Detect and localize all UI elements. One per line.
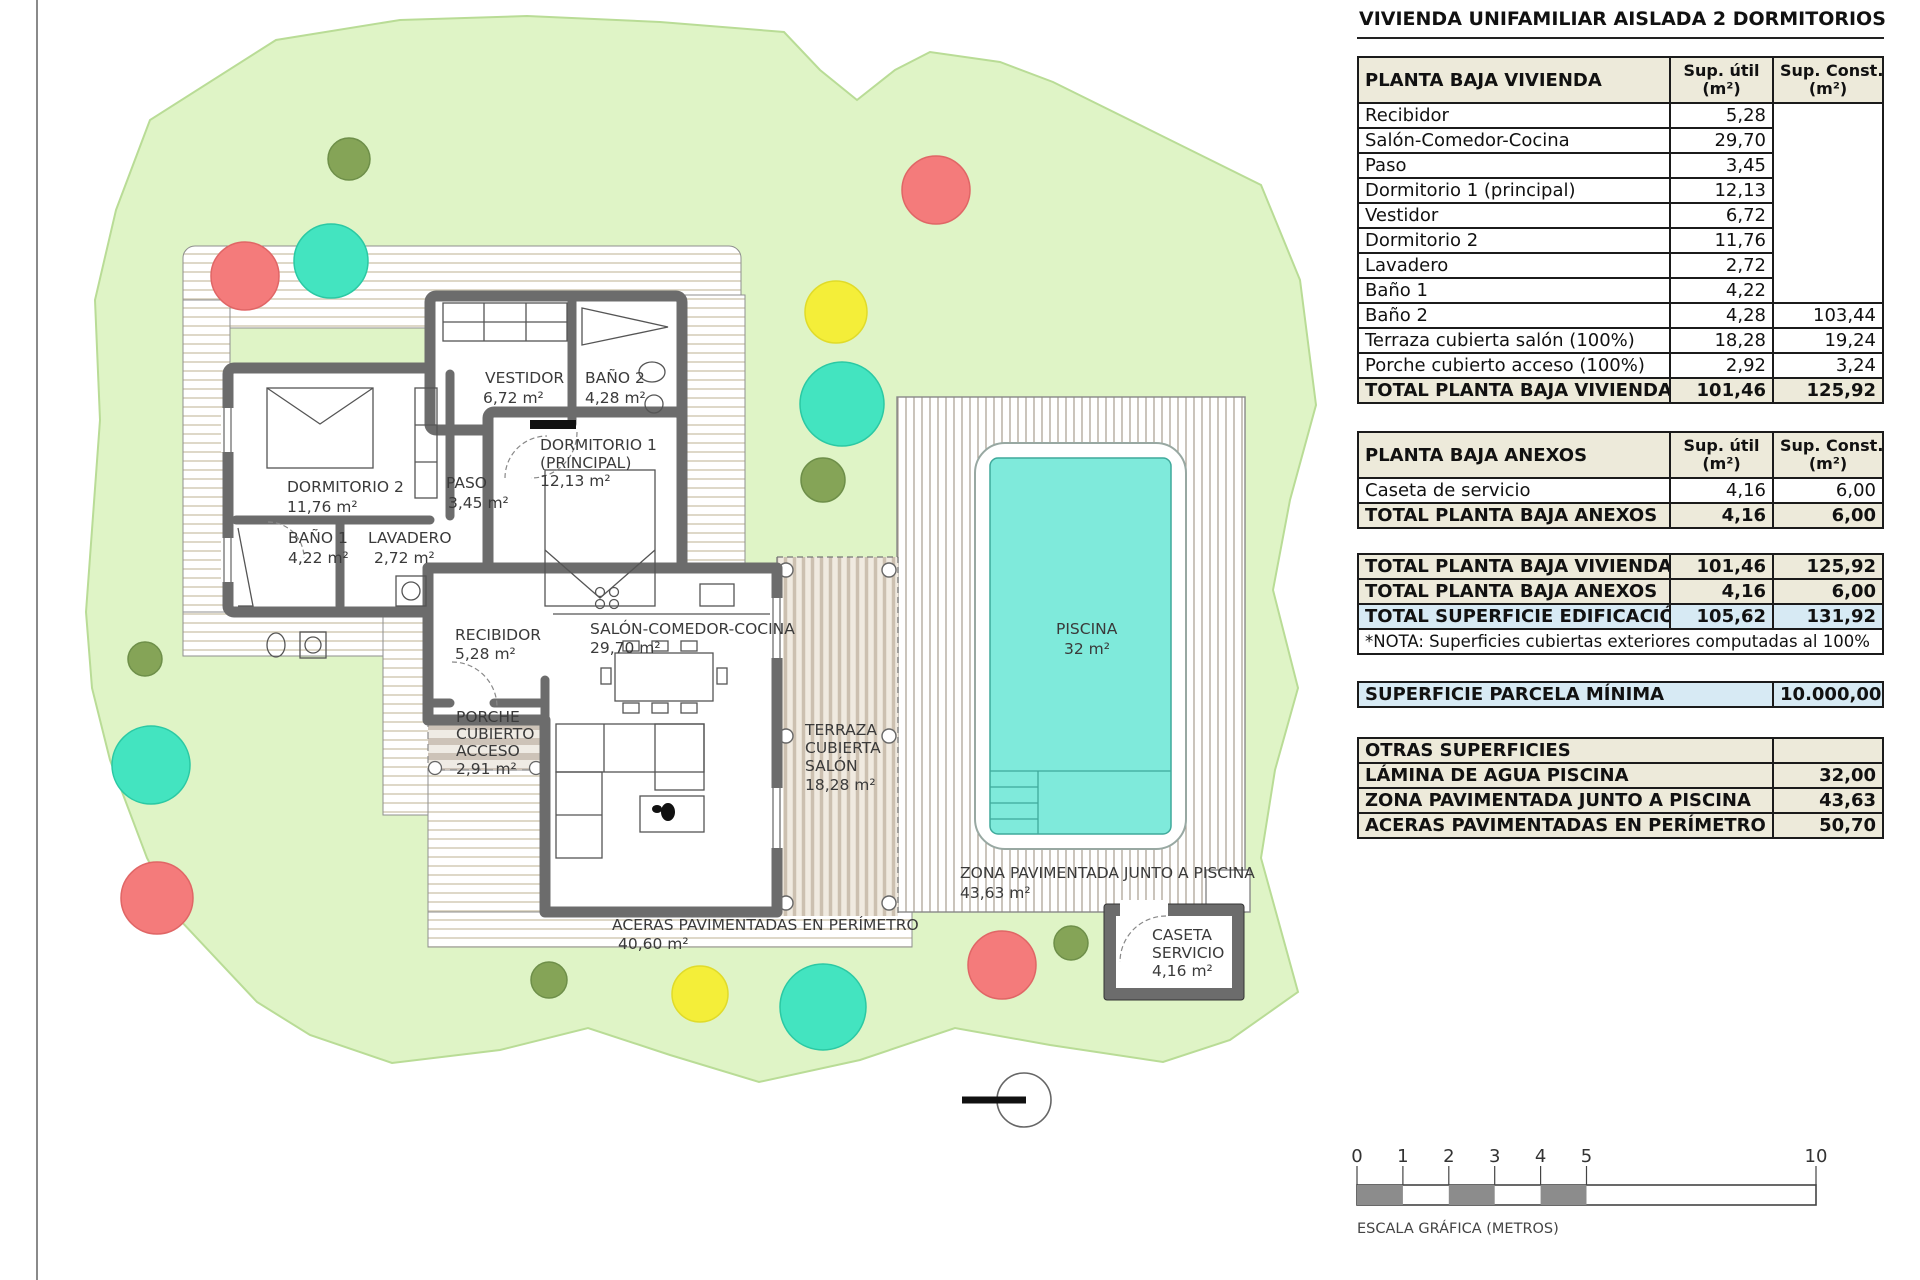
cell-total-const: 125,92 xyxy=(1773,554,1883,579)
label-dormitorio1-area: 12,13 m² xyxy=(540,472,611,490)
cell-label: Dormitorio 1 (principal) xyxy=(1358,178,1670,203)
cell-total-const: 6,00 xyxy=(1773,579,1883,604)
header-sup-const-line2: (m²) xyxy=(1780,80,1876,98)
table-total-row: TOTAL PLANTA BAJA VIVIENDA 101,46 125,92 xyxy=(1358,378,1883,403)
label-porche: PORCHE xyxy=(456,708,520,726)
bedroom1-door-leaf xyxy=(530,420,576,429)
tree-icon xyxy=(294,224,368,298)
table-row: LÁMINA DE AGUA PISCINA 32,00 xyxy=(1358,763,1883,788)
label-terraza-area: 18,28 m² xyxy=(805,776,876,794)
cell-value: 50,70 xyxy=(1773,813,1883,838)
label-caseta: CASETA xyxy=(1152,926,1212,944)
label-bano1: BAÑO 1 xyxy=(288,528,348,547)
cell-total-const: 6,00 xyxy=(1773,503,1883,528)
tree-icon xyxy=(801,458,845,502)
tree-icon xyxy=(672,966,728,1022)
header-sup-util-line2: (m²) xyxy=(1677,80,1766,98)
tree-icon xyxy=(112,726,190,804)
cell-label: Recibidor xyxy=(1358,103,1670,128)
cell-label: ACERAS PAVIMENTADAS EN PERÍMETRO xyxy=(1358,813,1773,838)
cell-sup-util: 6,72 xyxy=(1670,203,1773,228)
scale-tick-2: 2 xyxy=(1443,1146,1454,1167)
header-sup-const-line1: Sup. Const. xyxy=(1780,62,1876,80)
table-row: SUPERFICIE PARCELA MÍNIMA 10.000,00 xyxy=(1358,682,1883,707)
surface-tables: VIVIENDA UNIFAMILIAR AISLADA 2 DORMITORI… xyxy=(1357,6,1884,839)
tree-icon xyxy=(800,362,884,446)
label-dormitorio1-2: (PRINCIPAL) xyxy=(540,454,631,472)
header-sup-const-line1: Sup. Const. xyxy=(1780,437,1876,455)
header-planta-baja-anexos: PLANTA BAJA ANEXOS xyxy=(1358,432,1670,478)
tree-icon xyxy=(531,962,567,998)
label-bano2: BAÑO 2 xyxy=(585,368,645,387)
label-dormitorio2-area: 11,76 m² xyxy=(287,498,358,516)
label-piscina-area: 32 m² xyxy=(1064,640,1110,658)
cell-total-util: 4,16 xyxy=(1670,503,1773,528)
label-vestidor-area: 6,72 m² xyxy=(483,389,544,407)
tree-icon xyxy=(121,862,193,934)
label-lavadero: LAVADERO xyxy=(368,529,452,547)
cell-sup-const: 103,44 xyxy=(1773,303,1883,328)
label-caseta-2: SERVICIO xyxy=(1152,944,1224,962)
cell-total-util: 101,46 xyxy=(1670,378,1773,403)
table-row: Baño 2 4,28 103,44 xyxy=(1358,303,1883,328)
tree-icon xyxy=(128,642,162,676)
cell-total-const: 125,92 xyxy=(1773,378,1883,403)
table-row: ZONA PAVIMENTADA JUNTO A PISCINA 43,63 xyxy=(1358,788,1883,813)
cell-sup-util: 4,16 xyxy=(1670,478,1773,503)
cell-total-label: TOTAL PLANTA BAJA ANEXOS xyxy=(1358,579,1670,604)
cell-sup-util: 4,28 xyxy=(1670,303,1773,328)
table-header-row: OTRAS SUPERFICIES xyxy=(1358,738,1883,763)
label-terraza-2: CUBIERTA xyxy=(805,739,881,757)
cell-total-label: TOTAL SUPERFICIE EDIFICACIÓN xyxy=(1358,604,1670,629)
label-terraza: TERRAZA xyxy=(804,721,877,739)
cell-label: Baño 1 xyxy=(1358,278,1670,303)
cell-sup-const: 3,24 xyxy=(1773,353,1883,378)
table-total-row: TOTAL PLANTA BAJA ANEXOS 4,16 6,00 xyxy=(1358,579,1883,604)
cell-label: Paso xyxy=(1358,153,1670,178)
label-paso: PASO xyxy=(446,474,487,492)
entry-symbol xyxy=(962,1073,1051,1127)
cell-sup-util: 4,22 xyxy=(1670,278,1773,303)
tree-icon xyxy=(902,156,970,224)
label-zona: ZONA PAVIMENTADA JUNTO A PISCINA xyxy=(960,864,1255,882)
cell-label: Lavadero xyxy=(1358,253,1670,278)
table-total-row: TOTAL PLANTA BAJA ANEXOS 4,16 6,00 xyxy=(1358,503,1883,528)
cell-sup-const-merged xyxy=(1773,103,1883,303)
scale-tick-1: 1 xyxy=(1397,1146,1408,1167)
label-zona-area: 43,63 m² xyxy=(960,884,1031,902)
table-parcela-minima: SUPERFICIE PARCELA MÍNIMA 10.000,00 xyxy=(1357,681,1884,708)
cell-sup-const: 6,00 xyxy=(1773,478,1883,503)
table-header-row: PLANTA BAJA ANEXOS Sup. útil (m²) Sup. C… xyxy=(1358,432,1883,478)
cell-parcela-label: SUPERFICIE PARCELA MÍNIMA xyxy=(1358,682,1773,707)
cell-sup-util: 2,72 xyxy=(1670,253,1773,278)
table-planta-baja-vivienda: PLANTA BAJA VIVIENDA Sup. útil (m²) Sup.… xyxy=(1357,56,1884,404)
cell-sup-util: 3,45 xyxy=(1670,153,1773,178)
header-sup-util: Sup. útil (m²) xyxy=(1670,57,1773,103)
label-paso-area: 3,45 m² xyxy=(448,494,509,512)
cell-sup-util: 2,92 xyxy=(1670,353,1773,378)
label-porche-area: 2,91 m² xyxy=(456,760,517,778)
table-row: Porche cubierto acceso (100%) 2,92 3,24 xyxy=(1358,353,1883,378)
label-aceras-area: 40,60 m² xyxy=(618,935,689,953)
header-planta-baja-vivienda: PLANTA BAJA VIVIENDA xyxy=(1358,57,1670,103)
scale-bar-label: ESCALA GRÁFICA (METROS) xyxy=(1357,1220,1559,1237)
header-sup-util-line1: Sup. útil xyxy=(1677,437,1766,455)
table-totales: TOTAL PLANTA BAJA VIVIENDA 101,46 125,92… xyxy=(1357,553,1884,655)
table-row: ACERAS PAVIMENTADAS EN PERÍMETRO 50,70 xyxy=(1358,813,1883,838)
label-aceras: ACERAS PAVIMENTADAS EN PERÍMETRO xyxy=(612,915,919,934)
table-row: Caseta de servicio 4,16 6,00 xyxy=(1358,478,1883,503)
header-sup-util-line1: Sup. útil xyxy=(1677,62,1766,80)
cell-value xyxy=(1773,738,1883,763)
tree-icon xyxy=(211,242,279,310)
cell-value: 32,00 xyxy=(1773,763,1883,788)
label-salon: SALÓN-COMEDOR-COCINA xyxy=(590,619,795,638)
table-total-row: TOTAL PLANTA BAJA VIVIENDA 101,46 125,92 xyxy=(1358,554,1883,579)
cell-total-label: TOTAL PLANTA BAJA VIVIENDA xyxy=(1358,378,1670,403)
label-recibidor: RECIBIDOR xyxy=(455,626,541,644)
label-bano2-area: 4,28 m² xyxy=(585,389,646,407)
table-row: Recibidor 5,28 xyxy=(1358,103,1883,128)
scale-tick-5: 5 xyxy=(1581,1146,1592,1167)
table-row: Terraza cubierta salón (100%) 18,28 19,2… xyxy=(1358,328,1883,353)
cell-sup-util: 5,28 xyxy=(1670,103,1773,128)
label-piscina: PISCINA xyxy=(1056,620,1118,638)
page-title: VIVIENDA UNIFAMILIAR AISLADA 2 DORMITORI… xyxy=(1357,6,1884,39)
header-sup-util-line2: (m²) xyxy=(1677,455,1766,473)
cell-parcela-value: 10.000,00 xyxy=(1773,682,1883,707)
cell-sup-const: 19,24 xyxy=(1773,328,1883,353)
cell-label: ZONA PAVIMENTADA JUNTO A PISCINA xyxy=(1358,788,1773,813)
cell-total-label: TOTAL PLANTA BAJA VIVIENDA xyxy=(1358,554,1670,579)
label-vestidor: VESTIDOR xyxy=(485,369,564,387)
label-dormitorio2: DORMITORIO 2 xyxy=(287,478,404,496)
cell-label: Caseta de servicio xyxy=(1358,478,1670,503)
cell-sup-util: 18,28 xyxy=(1670,328,1773,353)
cell-sup-util: 12,13 xyxy=(1670,178,1773,203)
label-porche-2: CUBIERTO xyxy=(456,725,534,743)
tree-icon xyxy=(1054,926,1088,960)
table-planta-baja-anexos: PLANTA BAJA ANEXOS Sup. útil (m²) Sup. C… xyxy=(1357,431,1884,529)
cell-label: Salón-Comedor-Cocina xyxy=(1358,128,1670,153)
label-recibidor-area: 5,28 m² xyxy=(455,645,516,663)
label-bano1-area: 4,22 m² xyxy=(288,549,349,567)
tree-icon xyxy=(805,281,867,343)
label-dormitorio1: DORMITORIO 1 xyxy=(540,436,657,454)
table-otras-superficies: OTRAS SUPERFICIES LÁMINA DE AGUA PISCINA… xyxy=(1357,737,1884,839)
header-otras-superficies: OTRAS SUPERFICIES xyxy=(1358,738,1773,763)
scale-tick-4: 4 xyxy=(1535,1146,1546,1167)
table-header-row: PLANTA BAJA VIVIENDA Sup. útil (m²) Sup.… xyxy=(1358,57,1883,103)
label-terraza-3: SALÓN xyxy=(805,756,858,775)
header-sup-const: Sup. Const. (m²) xyxy=(1773,57,1883,103)
cell-label: Vestidor xyxy=(1358,203,1670,228)
tree-icon xyxy=(328,138,370,180)
table-note-row: *NOTA: Superficies cubiertas exteriores … xyxy=(1358,629,1883,654)
header-sup-const: Sup. Const. (m²) xyxy=(1773,432,1883,478)
cell-sup-util: 11,76 xyxy=(1670,228,1773,253)
cell-label: Baño 2 xyxy=(1358,303,1670,328)
cell-total-util: 105,62 xyxy=(1670,604,1773,629)
scale-tick-0: 0 xyxy=(1351,1146,1362,1167)
table-grand-total-row: TOTAL SUPERFICIE EDIFICACIÓN 105,62 131,… xyxy=(1358,604,1883,629)
label-porche-3: ACCESO xyxy=(456,742,520,760)
cell-label: LÁMINA DE AGUA PISCINA xyxy=(1358,763,1773,788)
tree-icon xyxy=(780,964,866,1050)
header-sup-const-line2: (m²) xyxy=(1780,455,1876,473)
scale-tick-3: 3 xyxy=(1489,1146,1500,1167)
label-salon-area: 29,70 m² xyxy=(590,639,661,657)
label-caseta-area: 4,16 m² xyxy=(1152,962,1213,980)
scale-bar: 0 1 2 3 4 5 10 ESCALA GRÁFICA (METROS) xyxy=(1351,1146,1827,1237)
cell-value: 43,63 xyxy=(1773,788,1883,813)
cell-sup-util: 29,70 xyxy=(1670,128,1773,153)
cell-total-util: 101,46 xyxy=(1670,554,1773,579)
tree-icon xyxy=(968,931,1036,999)
header-sup-util: Sup. útil (m²) xyxy=(1670,432,1773,478)
cell-label: Terraza cubierta salón (100%) xyxy=(1358,328,1670,353)
cell-label: Porche cubierto acceso (100%) xyxy=(1358,353,1670,378)
cell-total-util: 4,16 xyxy=(1670,579,1773,604)
cell-total-label: TOTAL PLANTA BAJA ANEXOS xyxy=(1358,503,1670,528)
cell-total-const: 131,92 xyxy=(1773,604,1883,629)
label-lavadero-area: 2,72 m² xyxy=(374,549,435,567)
note-text: *NOTA: Superficies cubiertas exteriores … xyxy=(1358,629,1883,654)
cell-label: Dormitorio 2 xyxy=(1358,228,1670,253)
scale-tick-10: 10 xyxy=(1805,1146,1828,1167)
